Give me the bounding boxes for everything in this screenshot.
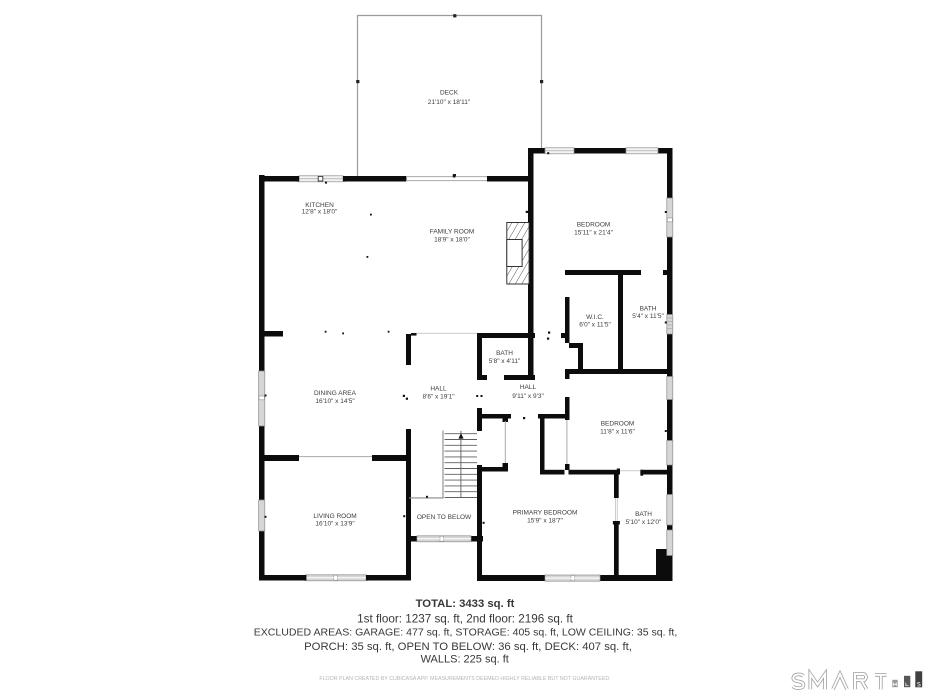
svg-text:1st floor: 1237 sq. ft, 2nd fl: 1st floor: 1237 sq. ft, 2nd floor: 2196 … — [357, 613, 573, 626]
svg-text:BATH: BATH — [640, 305, 657, 312]
svg-text:HALL: HALL — [430, 385, 447, 392]
svg-text:BATH: BATH — [635, 511, 652, 518]
svg-text:LIVING ROOM: LIVING ROOM — [313, 513, 356, 520]
svg-text:21'10" x 18'11": 21'10" x 18'11" — [428, 99, 471, 106]
svg-text:9'11" x 9'3": 9'11" x 9'3" — [512, 393, 544, 400]
svg-text:FAMILY ROOM: FAMILY ROOM — [430, 228, 475, 235]
svg-text:6'0" x 11'5": 6'0" x 11'5" — [579, 321, 611, 328]
svg-text:TOTAL: 3433 sq. ft: TOTAL: 3433 sq. ft — [416, 598, 515, 610]
svg-text:BEDROOM: BEDROOM — [577, 221, 611, 228]
svg-text:5'8" x 4'11": 5'8" x 4'11" — [489, 358, 521, 365]
svg-text:12'8" x 18'0": 12'8" x 18'0" — [302, 209, 338, 216]
svg-text:WALLS: 225 sq. ft: WALLS: 225 sq. ft — [421, 654, 509, 666]
svg-text:5'10" x 12'0": 5'10" x 12'0" — [626, 519, 662, 526]
svg-text:11'8" x 11'6": 11'8" x 11'6" — [600, 428, 635, 435]
svg-text:8'6" x 19'1": 8'6" x 19'1" — [422, 393, 455, 400]
svg-text:BATH: BATH — [496, 350, 513, 357]
svg-text:PORCH: 35 sq. ft, OPEN TO BELO: PORCH: 35 sq. ft, OPEN TO BELOW: 36 sq. … — [304, 641, 632, 653]
svg-text:EXCLUDED AREAS: GARAGE: 477 sq: EXCLUDED AREAS: GARAGE: 477 sq. ft, STOR… — [254, 627, 678, 639]
svg-text:HALL: HALL — [520, 384, 537, 391]
svg-text:PRIMARY BEDROOM: PRIMARY BEDROOM — [513, 509, 578, 516]
svg-text:16'10" x 13'9": 16'10" x 13'9" — [315, 520, 355, 527]
svg-text:18'9" x 18'0": 18'9" x 18'0" — [434, 236, 470, 243]
svg-text:W.I.C.: W.I.C. — [586, 314, 604, 321]
svg-text:5'4" x 11'5": 5'4" x 11'5" — [632, 313, 664, 320]
svg-text:16'10" x 14'5": 16'10" x 14'5" — [315, 398, 355, 405]
svg-text:FLOOR PLAN CREATED BY CUBICASA: FLOOR PLAN CREATED BY CUBICASA APP. MEAS… — [319, 676, 610, 682]
svg-text:DECK: DECK — [440, 89, 459, 96]
svg-text:OPEN TO BELOW: OPEN TO BELOW — [417, 514, 472, 521]
svg-text:15'9" x 18'7": 15'9" x 18'7" — [527, 517, 563, 524]
svg-text:15'11" x 21'4": 15'11" x 21'4" — [574, 229, 613, 236]
svg-text:DINING AREA: DINING AREA — [314, 390, 357, 397]
svg-text:BEDROOM: BEDROOM — [601, 420, 635, 427]
